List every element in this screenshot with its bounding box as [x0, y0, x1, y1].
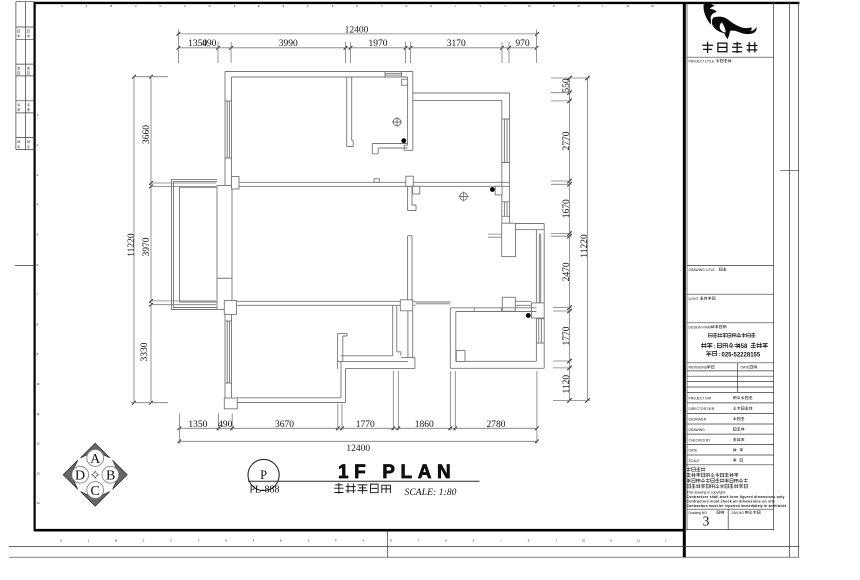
svg-text:1350: 1350 [188, 420, 207, 430]
svg-text:G: G [390, 539, 392, 543]
svg-text:DRAWING LITLE: DRAWING LITLE [689, 268, 716, 272]
svg-text:A: A [90, 452, 101, 467]
svg-text:025-52228155: 025-52228155 [722, 352, 761, 358]
svg-text:SCALE: 1:80: SCALE: 1:80 [405, 488, 457, 498]
svg-text:1970: 1970 [369, 39, 388, 49]
svg-text:B: B [115, 539, 117, 543]
svg-text:H: H [405, 4, 407, 8]
svg-text:This drawing is copyright: This drawing is copyright [687, 490, 726, 494]
svg-text:D: D [209, 4, 211, 8]
svg-text:1120: 1120 [562, 375, 572, 394]
svg-text:H: H [445, 539, 447, 543]
svg-text:1F PLAN: 1F PLAN [338, 462, 456, 483]
svg-text:970: 970 [515, 39, 530, 49]
svg-text:1770: 1770 [356, 420, 375, 430]
svg-text:A: A [60, 539, 62, 543]
svg-text:DRAWING: DRAWING [689, 428, 706, 432]
svg-text:G: G [356, 4, 358, 8]
svg-text:14: 14 [37, 501, 41, 505]
svg-text:DATE: DATE [741, 366, 751, 370]
svg-text:Contractors shall work form fi: Contractors shall work form figured dime… [687, 495, 785, 499]
svg-text:13: 13 [37, 472, 41, 476]
svg-text:SCALE: SCALE [689, 459, 701, 463]
svg-text:458: 458 [737, 344, 748, 350]
svg-text:1860: 1860 [415, 420, 434, 430]
svg-text:2780: 2780 [487, 420, 506, 430]
svg-text:10: 10 [582, 539, 586, 543]
svg-text:11: 11 [637, 539, 640, 543]
svg-text:CHECKED BY: CHECKED BY [689, 438, 712, 442]
svg-text:490: 490 [218, 420, 233, 430]
svg-text:DIRECTOR DER: DIRECTOR DER [689, 407, 715, 411]
svg-text:DESIGNER: DESIGNER [689, 418, 707, 422]
svg-text:3: 3 [703, 514, 710, 529]
svg-text:LIGHT: LIGHT [689, 297, 699, 301]
svg-text:K: K [610, 539, 612, 543]
svg-text:12400: 12400 [345, 26, 369, 36]
svg-text:3670: 3670 [275, 420, 294, 430]
svg-text:1670: 1670 [562, 199, 572, 218]
svg-text:3170: 3170 [447, 39, 466, 49]
svg-text:11220: 11220 [127, 233, 137, 257]
svg-text:P: P [260, 468, 267, 482]
svg-text:E: E [280, 539, 282, 543]
svg-text:PL-888: PL-888 [250, 484, 280, 495]
svg-text:B: B [110, 4, 112, 8]
svg-text:JAN NO: JAN NO [732, 511, 745, 515]
svg-text:C: C [91, 484, 100, 499]
svg-text:DESIGN FIRM: DESIGN FIRM [689, 326, 711, 330]
svg-text:550: 550 [562, 78, 572, 93]
svg-text:A: A [61, 4, 63, 8]
svg-text:PROJECT LITLE: PROJECT LITLE [689, 60, 715, 64]
svg-text:Contractors must be reported i: Contractors must be reported immediately… [687, 504, 787, 508]
svg-text:11220: 11220 [580, 234, 590, 258]
svg-text:REVISIONS: REVISIONS [689, 366, 708, 370]
svg-text:1770: 1770 [562, 326, 572, 345]
svg-text:3660: 3660 [142, 125, 152, 144]
svg-text:D: D [225, 539, 227, 543]
svg-text:2470: 2470 [562, 262, 572, 281]
svg-text:E: E [258, 4, 260, 8]
svg-text:490: 490 [202, 39, 217, 49]
svg-text:M: M [651, 4, 653, 8]
svg-text:12400: 12400 [346, 444, 370, 454]
svg-text:3330: 3330 [140, 342, 150, 361]
svg-text:F: F [335, 539, 337, 543]
svg-text:K: K [553, 4, 555, 8]
svg-text:Contractors must check all dim: Contractors must check all dimensions on… [687, 500, 776, 504]
svg-text:B: B [106, 469, 115, 484]
svg-text:11: 11 [37, 412, 40, 416]
svg-text:C: C [159, 4, 161, 8]
svg-text:C: C [170, 539, 172, 543]
svg-text:10: 10 [37, 382, 41, 386]
svg-text:12: 12 [37, 442, 41, 446]
svg-text:3970: 3970 [142, 237, 152, 256]
svg-text:2770: 2770 [562, 131, 572, 150]
svg-text:D: D [75, 469, 85, 484]
svg-text:DATE: DATE [689, 449, 699, 453]
svg-text:3990: 3990 [279, 39, 298, 49]
svg-text:PROJECT DIR: PROJECT DIR [689, 397, 712, 401]
